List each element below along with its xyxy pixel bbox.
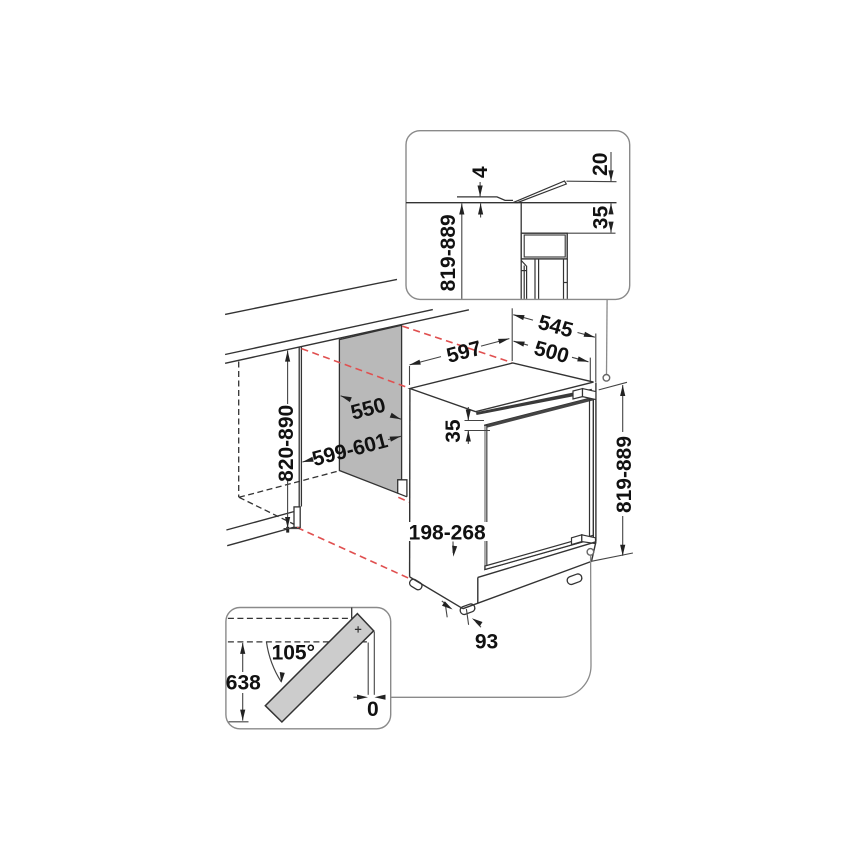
svg-text:35: 35: [442, 419, 465, 443]
svg-text:0: 0: [367, 698, 379, 721]
svg-text:93: 93: [475, 630, 498, 653]
svg-text:819-889: 819-889: [613, 436, 636, 513]
svg-text:20: 20: [589, 153, 612, 176]
svg-text:105°: 105°: [272, 641, 315, 664]
svg-text:35: 35: [589, 206, 612, 230]
svg-text:638: 638: [226, 671, 261, 694]
svg-text:198-268: 198-268: [409, 521, 486, 544]
svg-text:4: 4: [469, 166, 492, 178]
svg-text:819-889: 819-889: [437, 214, 460, 291]
svg-text:820-890: 820-890: [275, 405, 298, 482]
